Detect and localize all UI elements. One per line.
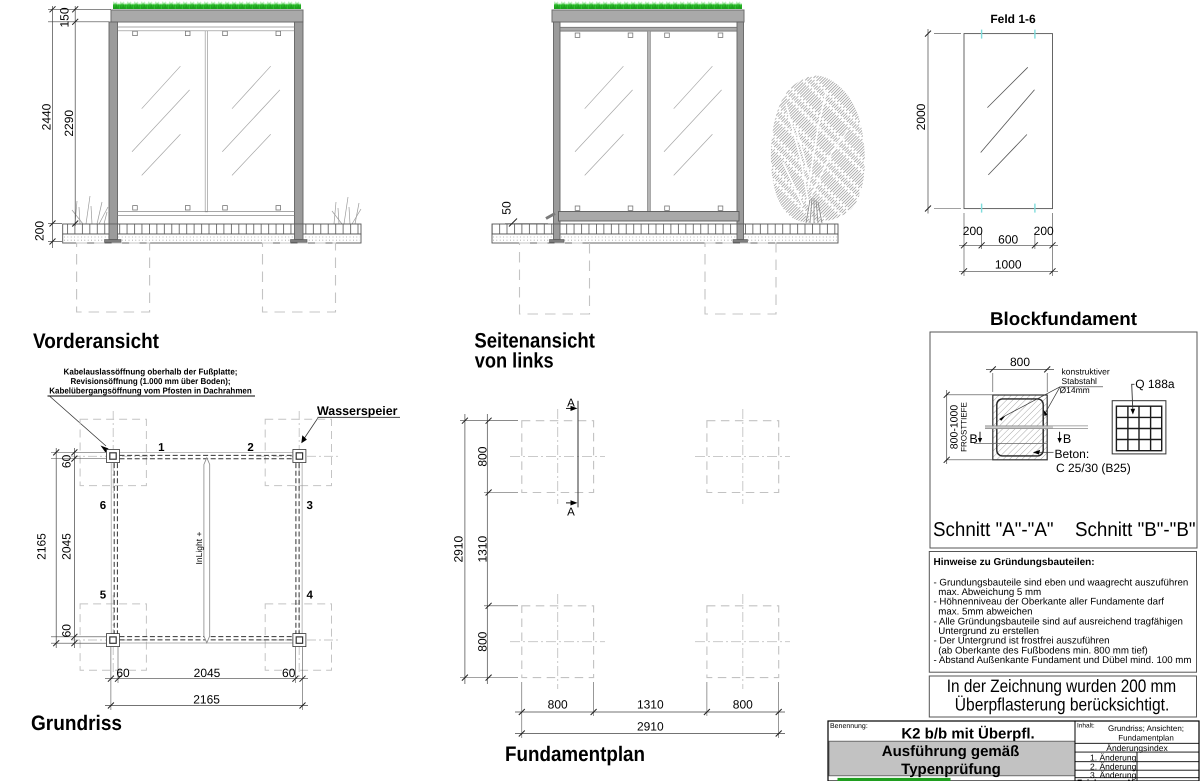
svg-text:Fundamentplan: Fundamentplan [1118,734,1174,743]
svg-text:FROSTTIEFE: FROSTTIEFE [960,402,969,452]
svg-text:Revisionsöffnung (1.000 mm übe: Revisionsöffnung (1.000 mm über Boden); [71,376,231,386]
svg-text:800: 800 [476,631,490,651]
svg-text:- Abstand Außenkante Fundament: - Abstand Außenkante Fundament und Dübel… [934,655,1192,666]
svg-text:60: 60 [116,666,130,680]
svg-text:K2 b/b mit Überpfl.: K2 b/b mit Überpfl. [901,726,1034,743]
svg-text:Änderungsindex: Änderungsindex [1106,743,1168,753]
svg-text:Grundriss: Grundriss [31,712,122,735]
svg-text:800: 800 [476,446,490,466]
svg-text:Typenprüfung: Typenprüfung [901,761,1001,778]
svg-text:2000: 2000 [914,103,928,130]
svg-text:Überpflasterung berücksichtigt: Überpflasterung berücksichtigt. [955,695,1170,715]
svg-text:Schnitt "A"-"A": Schnitt "A"-"A" [933,519,1054,541]
svg-text:200: 200 [963,224,983,238]
svg-text:InLight +: InLight + [194,532,204,565]
svg-text:Hinweise zu Gründungsbauteilen: Hinweise zu Gründungsbauteilen: [934,557,1095,568]
svg-text:800-1000: 800-1000 [948,405,960,450]
svg-text:2045: 2045 [194,666,221,680]
svg-text:Kabelübergangsöffnung vom Pfos: Kabelübergangsöffnung vom Pfosten in Dac… [49,386,252,396]
svg-text:2290: 2290 [62,110,76,137]
svg-text:60: 60 [60,624,74,638]
svg-text:Beton:: Beton: [1055,447,1090,461]
svg-text:1: 1 [158,442,165,454]
svg-text:2165: 2165 [193,693,220,707]
svg-text:In der Zeichnung wurden 200 mm: In der Zeichnung wurden 200 mm [947,676,1176,696]
svg-text:2165: 2165 [35,533,49,560]
svg-text:B: B [1063,432,1071,446]
svg-text:2440: 2440 [40,103,54,130]
svg-text:Vorderansicht: Vorderansicht [33,330,159,353]
svg-text:Zeichnungs-Nr.: Zeichnungs-Nr. [1077,778,1139,781]
svg-text:5: 5 [100,590,107,602]
svg-text:60: 60 [60,454,74,468]
svg-text:4: 4 [306,590,313,602]
svg-text:Feld 1-6: Feld 1-6 [990,12,1036,26]
svg-text:600: 600 [998,233,1018,247]
svg-text:50: 50 [500,201,514,215]
svg-text:Grundriss; Ansichten;: Grundriss; Ansichten; [1108,724,1184,733]
svg-text:800: 800 [1010,355,1030,369]
svg-text:1310: 1310 [637,698,664,712]
svg-text:2910: 2910 [452,536,466,563]
svg-text:1000: 1000 [995,258,1022,272]
svg-text:konstruktiver: konstruktiver [1062,367,1110,377]
svg-text:60: 60 [282,666,296,680]
svg-text:3: 3 [306,500,312,512]
svg-text:200: 200 [1034,224,1054,238]
svg-text:A: A [567,506,575,518]
svg-text:2: 2 [247,442,253,454]
svg-text:C 25/30 (B25): C 25/30 (B25) [1056,461,1131,475]
svg-text:150: 150 [58,7,72,27]
svg-text:Benennung:: Benennung: [830,723,868,730]
svg-text:800: 800 [733,698,753,712]
svg-text:Fundamentplan: Fundamentplan [505,743,645,766]
svg-text:200: 200 [33,221,47,241]
svg-text:6: 6 [100,500,106,512]
svg-text:2045: 2045 [60,533,74,560]
svg-text:B: B [969,432,977,446]
svg-text:Inhalt:: Inhalt: [1077,723,1095,730]
svg-text:2910: 2910 [637,720,664,734]
svg-text:Schnitt "B"-"B": Schnitt "B"-"B" [1075,519,1196,541]
svg-text:1310: 1310 [476,536,490,563]
svg-text:800: 800 [548,698,568,712]
svg-text:Kabelauslassöffnung oberhalb d: Kabelauslassöffnung oberhalb der Fußplat… [64,367,238,377]
svg-text:Q 188a: Q 188a [1135,377,1175,391]
svg-text:von links: von links [475,350,554,373]
svg-text:Ausführung gemäß: Ausführung gemäß [882,743,1020,760]
svg-text:Wasserspeier: Wasserspeier [317,404,398,418]
svg-text:Blockfundament: Blockfundament [990,308,1137,329]
